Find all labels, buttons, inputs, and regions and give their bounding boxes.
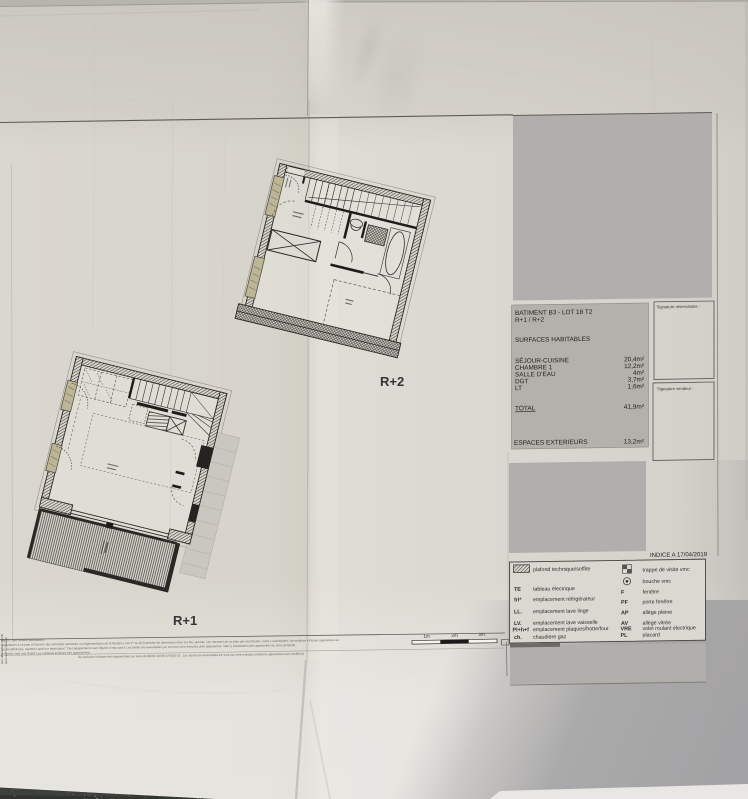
svg-text:emplacement plaques/hotte/four: emplacement plaques/hotte/four [533, 626, 609, 633]
svg-text:allège pleine: allège pleine [643, 610, 673, 616]
svg-text:LV.: LV. [514, 621, 522, 627]
svg-text:tableau électrique: tableau électrique [533, 586, 575, 593]
svg-text:LT: LT [515, 385, 522, 392]
svg-text:3m: 3m [478, 632, 485, 637]
svg-text:document contractuel: document contractuel [4, 637, 8, 664]
svg-text:bouche vmc: bouche vmc [643, 579, 672, 585]
svg-text:VRE: VRE [621, 626, 632, 632]
svg-text:plafond technique/soffite: plafond technique/soffite [533, 566, 590, 573]
svg-text:ch.: ch. [514, 635, 522, 641]
svg-text:volet roulant électrique: volet roulant électrique [643, 625, 696, 632]
svg-text:R+1 / R+2: R+1 / R+2 [515, 317, 545, 324]
svg-text:SURFACES HABITABLES: SURFACES HABITABLES [515, 336, 590, 344]
svg-text:LL.: LL. [514, 609, 523, 615]
svg-text:chaudière gaz: chaudière gaz [533, 634, 567, 640]
svg-text:frl*: frl* [514, 597, 522, 603]
svg-text:Signature réservataire :: Signature réservataire : [657, 304, 701, 310]
svg-text:41,9m²: 41,9m² [624, 404, 645, 411]
svg-text:Signature vendeur :: Signature vendeur : [657, 386, 694, 392]
svg-text:TOTAL: TOTAL [515, 405, 536, 412]
svg-text:TE: TE [514, 587, 521, 593]
svg-text:porte fenêtre: porte fenêtre [643, 599, 673, 605]
svg-text:13,2m²: 13,2m² [624, 438, 645, 445]
svg-text:PF: PF [621, 600, 629, 606]
svg-text:R+1: R+1 [173, 613, 197, 628]
svg-text:emplacement lave linge: emplacement lave linge [533, 608, 589, 615]
svg-text:fenêtre: fenêtre [643, 589, 660, 595]
svg-text:1,6m²: 1,6m² [628, 383, 644, 390]
svg-text:placard: placard [643, 632, 660, 638]
svg-text:INDICE A 17/04/2019: INDICE A 17/04/2019 [650, 552, 708, 559]
svg-text:trappe de visite vmc: trappe de visite vmc [643, 567, 690, 574]
svg-text:emplacement réfrigérateur: emplacement réfrigérateur [533, 596, 595, 603]
svg-text:R+2: R+2 [380, 374, 404, 389]
svg-text:Pl+h+f: Pl+h+f [513, 627, 530, 633]
svg-text:AP: AP [621, 610, 629, 616]
svg-text:BATIMENT B3 - LOT 18 T2: BATIMENT B3 - LOT 18 T2 [515, 309, 593, 317]
svg-text:PL: PL [621, 633, 629, 639]
svg-text:ESPACES EXTERIEURS: ESPACES EXTERIEURS [514, 439, 588, 447]
